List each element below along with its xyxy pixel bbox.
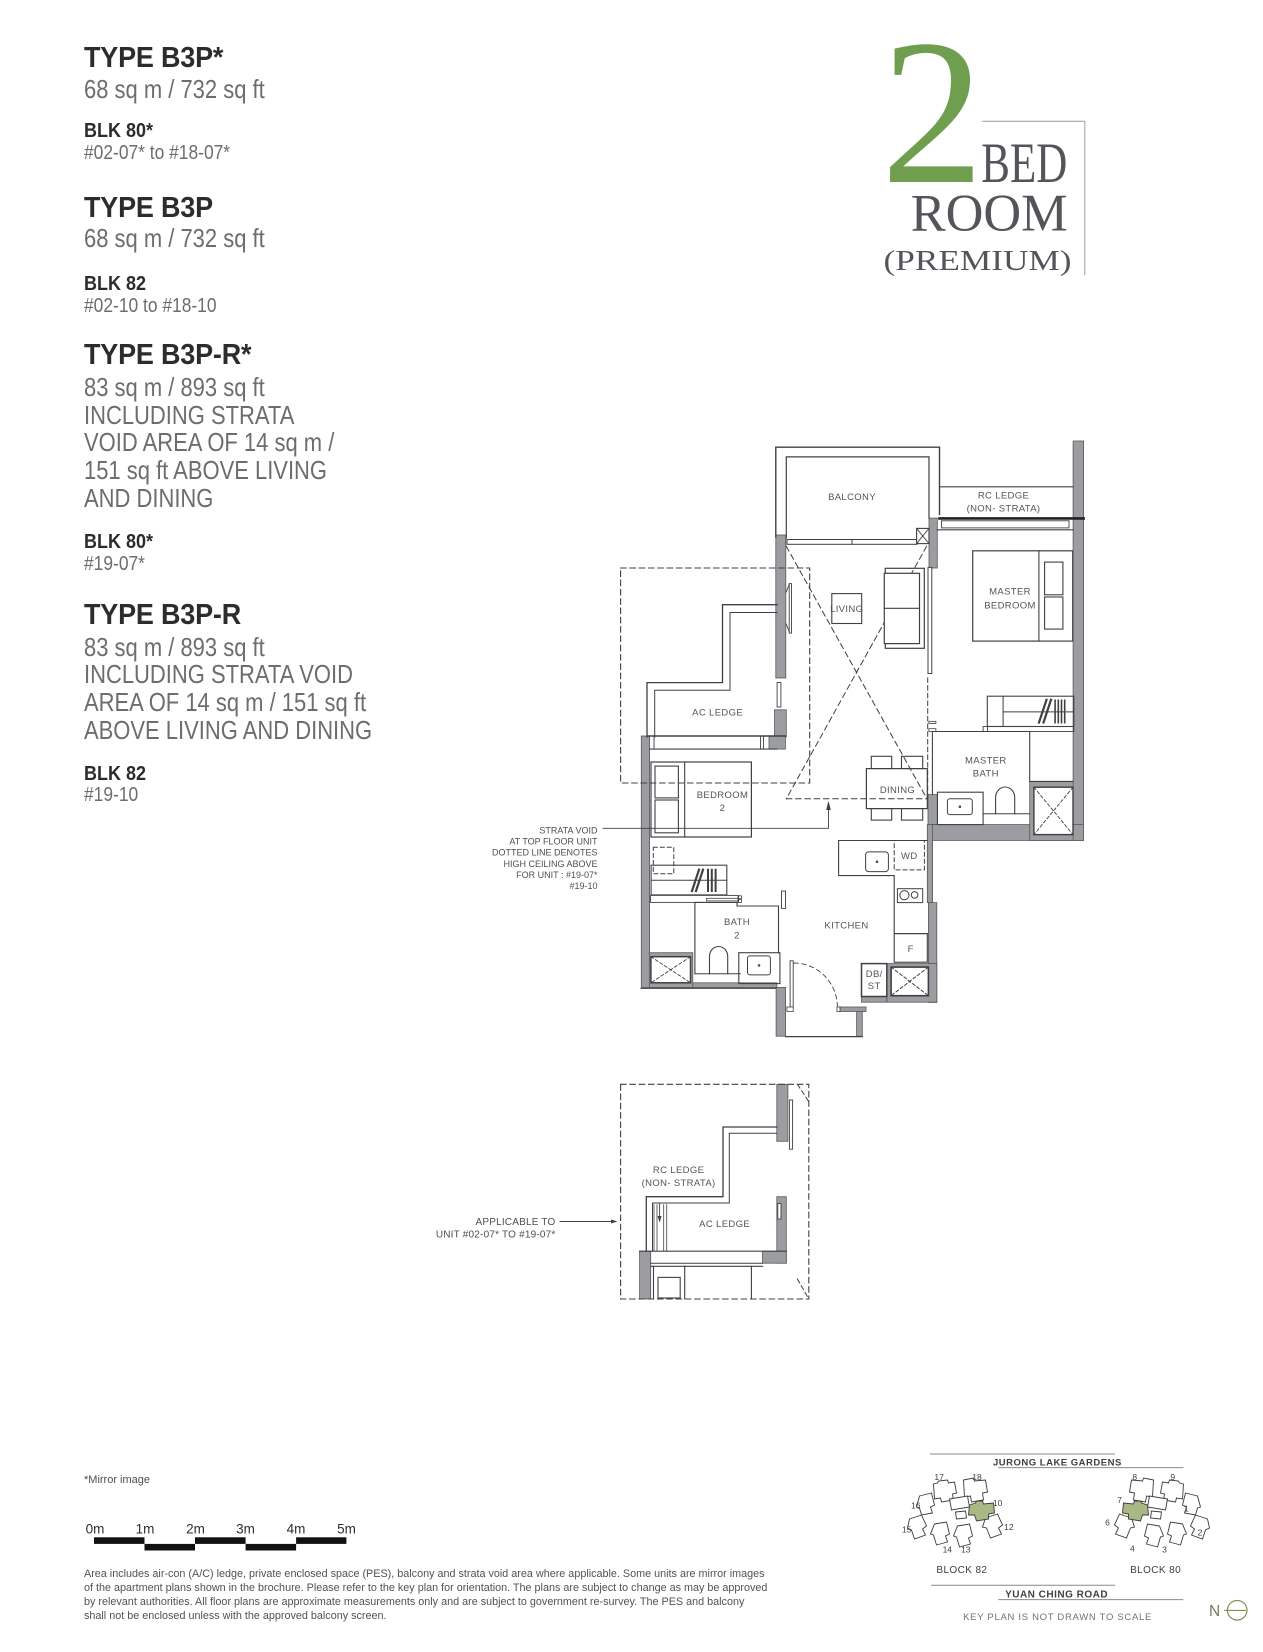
svg-text:LIVING: LIVING (830, 604, 863, 615)
svg-text:5m: 5m (337, 1522, 356, 1537)
svg-text:N: N (1209, 1603, 1220, 1620)
svg-text:2: 2 (1198, 1527, 1203, 1537)
svg-text:UNIT #02-07* TO #19-07*: UNIT #02-07* TO #19-07* (436, 1230, 556, 1241)
svg-text:MASTER: MASTER (965, 755, 1007, 766)
svg-text:BATH: BATH (724, 917, 750, 928)
svg-text:WD: WD (901, 851, 918, 862)
svg-text:BLOCK 80: BLOCK 80 (1130, 1565, 1181, 1576)
svg-text:17: 17 (934, 1472, 944, 1482)
svg-text:DOTTED LINE DENOTES: DOTTED LINE DENOTES (492, 848, 598, 858)
svg-text:DINING: DINING (880, 785, 915, 796)
svg-text:ST: ST (868, 981, 881, 992)
svg-text:13: 13 (961, 1545, 971, 1555)
svg-text:10: 10 (993, 1498, 1003, 1508)
svg-text:RC LEDGE: RC LEDGE (653, 1165, 704, 1176)
svg-text:YUAN CHING ROAD: YUAN CHING ROAD (1005, 1590, 1108, 1601)
svg-text:15: 15 (902, 1524, 912, 1534)
svg-text:F: F (908, 944, 914, 955)
svg-text:BEDROOM: BEDROOM (697, 790, 749, 801)
svg-text:1: 1 (1184, 1504, 1189, 1514)
svg-text:APPLICABLE TO: APPLICABLE TO (475, 1217, 555, 1228)
svg-text:4: 4 (1130, 1544, 1135, 1554)
svg-text:MASTER: MASTER (989, 587, 1031, 598)
svg-text:(PREMIUM): (PREMIUM) (884, 246, 1072, 277)
svg-text:KEY PLAN IS NOT DRAWN TO SCALE: KEY PLAN IS NOT DRAWN TO SCALE (963, 1612, 1152, 1623)
svg-text:1m: 1m (136, 1522, 155, 1537)
svg-text:0m: 0m (86, 1522, 105, 1537)
svg-text:18: 18 (972, 1472, 982, 1482)
svg-text:4m: 4m (287, 1522, 306, 1537)
svg-text:16: 16 (911, 1501, 921, 1511)
svg-text:8: 8 (1132, 1472, 1137, 1482)
svg-text:BATH: BATH (973, 768, 999, 779)
svg-text:HIGH CEILING ABOVE: HIGH CEILING ABOVE (503, 859, 597, 869)
svg-text:STRATA VOID: STRATA VOID (539, 826, 598, 836)
svg-text:AT TOP FLOOR UNIT: AT TOP FLOOR UNIT (509, 837, 598, 847)
svg-text:RC LEDGE: RC LEDGE (978, 491, 1029, 502)
svg-text:#19-10: #19-10 (569, 881, 597, 891)
svg-text:JURONG LAKE GARDENS: JURONG LAKE GARDENS (993, 1457, 1122, 1468)
svg-text:AC LEDGE: AC LEDGE (692, 708, 743, 719)
svg-text:2: 2 (720, 803, 726, 814)
svg-text:KITCHEN: KITCHEN (824, 921, 868, 932)
svg-text:DB/: DB/ (866, 969, 883, 980)
svg-text:FOR UNIT : #19-07*: FOR UNIT : #19-07* (516, 870, 598, 880)
svg-text:3m: 3m (236, 1522, 255, 1537)
svg-text:BLOCK 82: BLOCK 82 (936, 1565, 987, 1576)
svg-text:BEDROOM: BEDROOM (984, 601, 1036, 612)
svg-text:9: 9 (1170, 1472, 1175, 1482)
svg-text:2: 2 (734, 931, 740, 942)
svg-text:14: 14 (943, 1545, 953, 1555)
svg-text:3: 3 (1162, 1545, 1167, 1555)
svg-text:ROOM: ROOM (911, 185, 1068, 243)
svg-text:BALCONY: BALCONY (828, 492, 876, 503)
svg-text:AC LEDGE: AC LEDGE (699, 1219, 750, 1230)
svg-text:(NON- STRATA): (NON- STRATA) (967, 504, 1041, 515)
svg-text:6: 6 (1105, 1517, 1110, 1527)
svg-text:7: 7 (1117, 1495, 1122, 1505)
svg-text:2m: 2m (186, 1522, 205, 1537)
svg-text:(NON- STRATA): (NON- STRATA) (642, 1178, 716, 1189)
svg-text:12: 12 (1004, 1522, 1014, 1532)
